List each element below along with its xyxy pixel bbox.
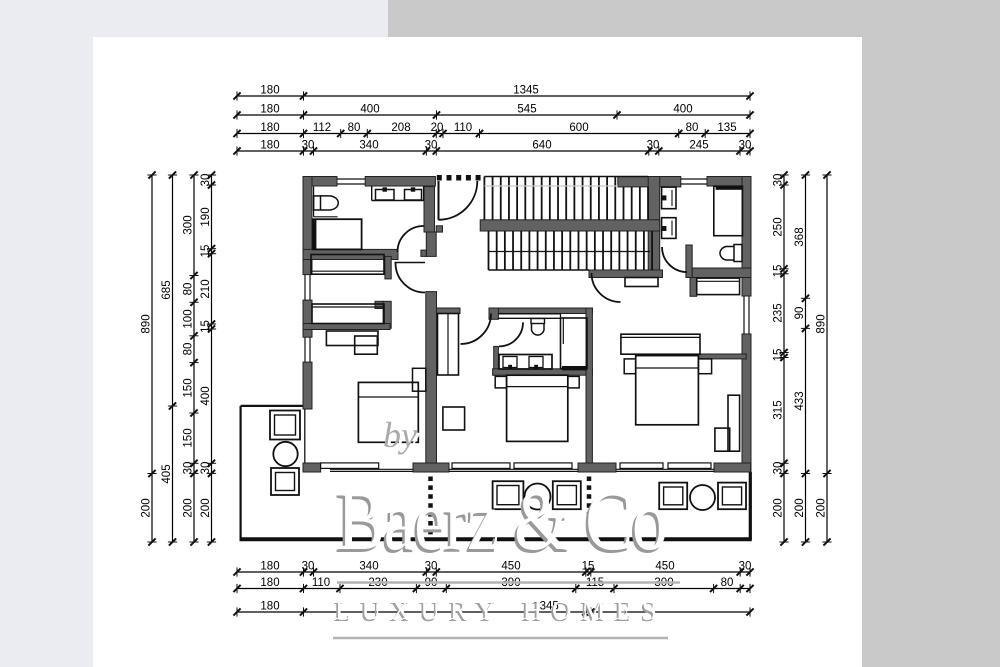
svg-text:600: 600 <box>569 122 588 134</box>
svg-text:250: 250 <box>773 217 785 236</box>
svg-text:315: 315 <box>773 400 785 419</box>
svg-text:210: 210 <box>200 279 212 298</box>
svg-text:1345: 1345 <box>513 85 539 97</box>
svg-text:685: 685 <box>161 280 173 299</box>
svg-text:110: 110 <box>454 122 472 134</box>
svg-text:110: 110 <box>312 577 330 589</box>
svg-text:300: 300 <box>183 215 195 234</box>
svg-text:15: 15 <box>200 320 212 333</box>
svg-text:80: 80 <box>721 577 734 589</box>
svg-text:400: 400 <box>673 104 692 116</box>
svg-text:890: 890 <box>816 314 828 333</box>
svg-text:400: 400 <box>200 386 212 405</box>
svg-text:180: 180 <box>260 140 279 152</box>
svg-text:200: 200 <box>141 498 153 517</box>
svg-text:100: 100 <box>183 309 195 328</box>
svg-text:30: 30 <box>739 561 752 573</box>
svg-text:LUXURY HOMES: LUXURY HOMES <box>335 595 670 625</box>
svg-text:15: 15 <box>773 265 785 278</box>
svg-text:180: 180 <box>260 577 279 589</box>
svg-text:Baerz & Co: Baerz & Co <box>337 473 668 568</box>
svg-text:135: 135 <box>717 122 736 134</box>
svg-text:200: 200 <box>794 498 806 517</box>
svg-text:112: 112 <box>313 122 331 134</box>
svg-text:180: 180 <box>260 85 279 97</box>
svg-text:545: 545 <box>517 104 536 116</box>
svg-text:245: 245 <box>689 140 708 152</box>
svg-text:30: 30 <box>200 462 212 475</box>
svg-text:200: 200 <box>200 498 212 517</box>
svg-text:30: 30 <box>183 462 195 475</box>
svg-text:15: 15 <box>200 245 212 258</box>
svg-text:400: 400 <box>360 104 379 116</box>
svg-text:180: 180 <box>260 122 279 134</box>
svg-text:433: 433 <box>794 391 806 410</box>
svg-text:by: by <box>383 415 417 455</box>
svg-text:405: 405 <box>161 464 173 483</box>
svg-text:150: 150 <box>183 378 195 397</box>
svg-text:200: 200 <box>183 498 195 517</box>
svg-text:30: 30 <box>200 174 212 187</box>
svg-text:200: 200 <box>816 498 828 517</box>
svg-text:640: 640 <box>532 140 551 152</box>
svg-text:180: 180 <box>260 104 279 116</box>
svg-text:190: 190 <box>200 207 212 226</box>
svg-text:20: 20 <box>431 122 444 134</box>
svg-text:90: 90 <box>794 307 806 320</box>
svg-text:15: 15 <box>773 349 785 362</box>
svg-text:30: 30 <box>773 174 785 187</box>
svg-text:30: 30 <box>739 140 752 152</box>
svg-text:208: 208 <box>391 122 410 134</box>
svg-text:30: 30 <box>425 140 438 152</box>
svg-text:180: 180 <box>260 561 279 573</box>
svg-text:150: 150 <box>183 428 195 447</box>
svg-text:890: 890 <box>141 314 153 333</box>
svg-text:80: 80 <box>183 283 195 296</box>
svg-text:30: 30 <box>302 561 315 573</box>
svg-text:30: 30 <box>302 140 315 152</box>
svg-text:30: 30 <box>647 140 660 152</box>
svg-text:80: 80 <box>686 122 699 134</box>
svg-text:180: 180 <box>260 601 279 613</box>
svg-text:235: 235 <box>773 303 785 322</box>
svg-text:368: 368 <box>794 227 806 246</box>
svg-text:30: 30 <box>773 462 785 475</box>
svg-text:80: 80 <box>348 122 361 134</box>
svg-text:200: 200 <box>773 498 785 517</box>
svg-text:80: 80 <box>183 343 195 356</box>
svg-text:340: 340 <box>359 140 378 152</box>
